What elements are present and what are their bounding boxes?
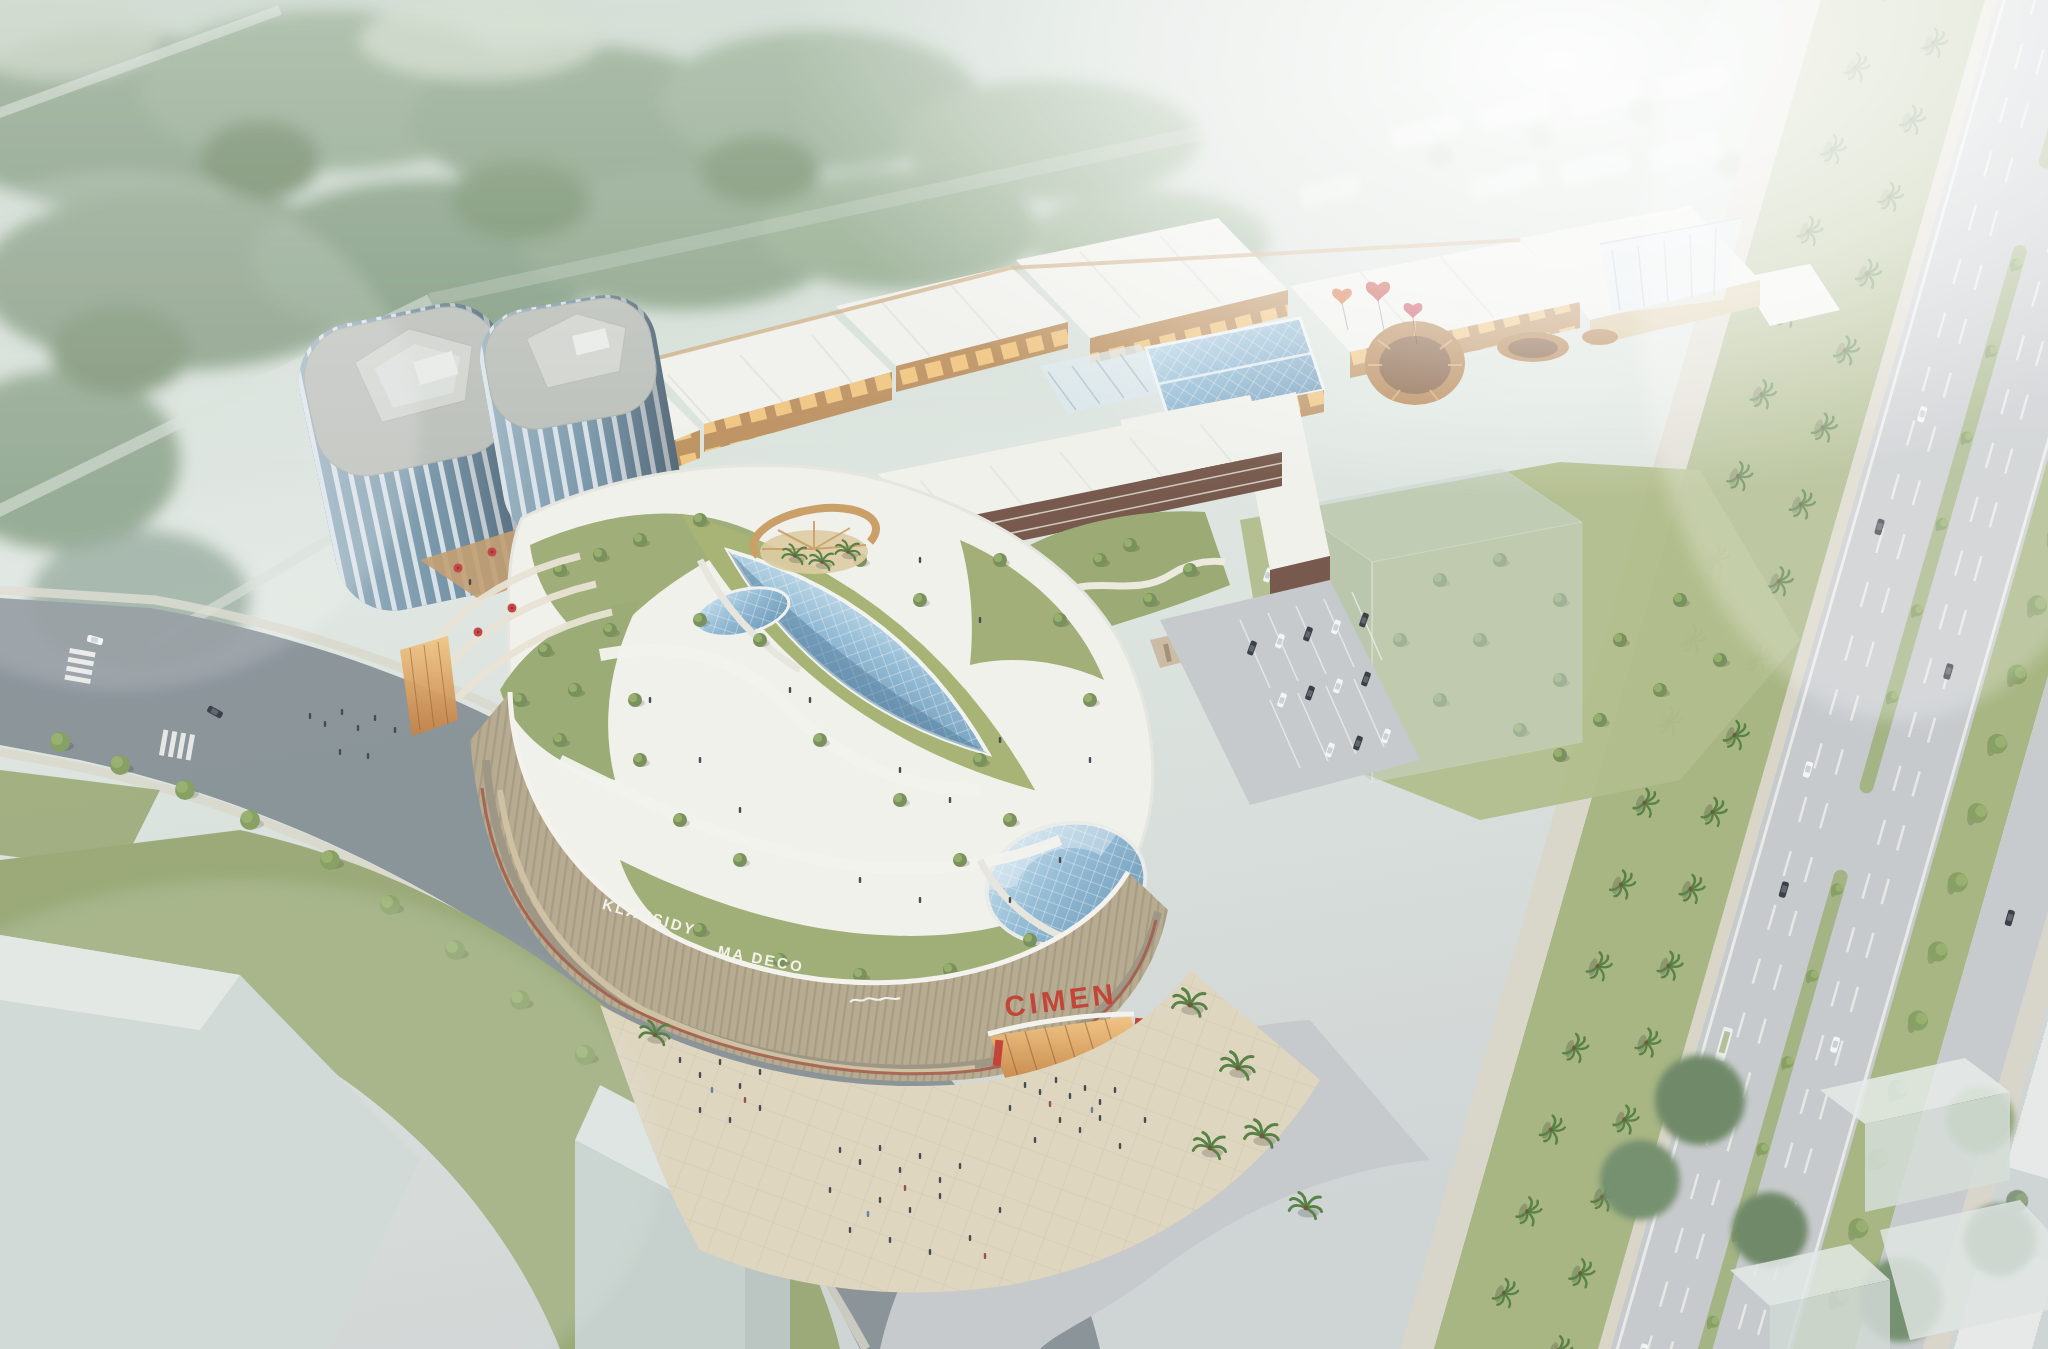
atmosphere-haze	[0, 0, 2048, 1349]
aerial-rendering: KLAUSIDY MA DECO CIMEN	[0, 0, 2048, 1349]
rendering-canvas: KLAUSIDY MA DECO CIMEN	[0, 0, 2048, 1349]
